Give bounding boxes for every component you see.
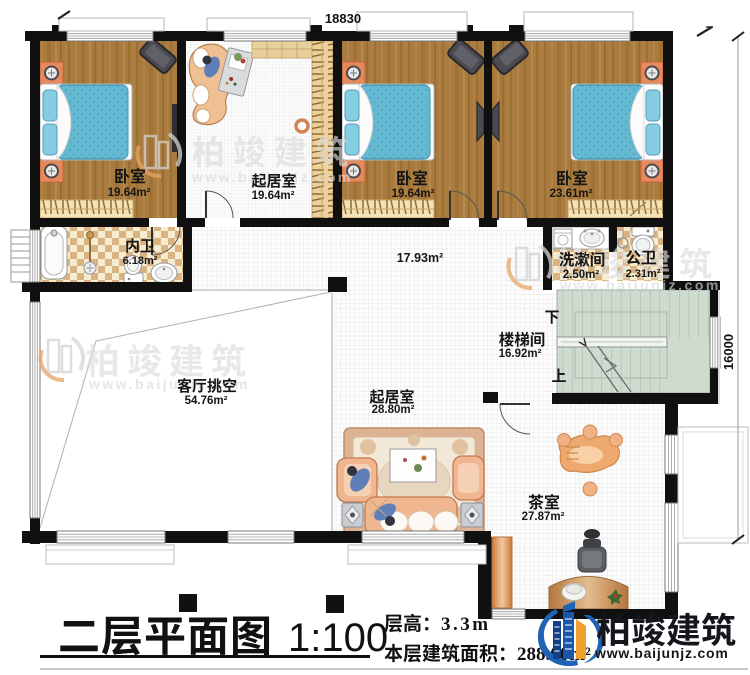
svg-text:2.50m²: 2.50m² [563,266,600,282]
svg-text:28.80m²: 28.80m² [372,401,415,417]
svg-text:54.76m²: 54.76m² [185,392,228,408]
svg-text:1:100: 1:100 [288,605,388,663]
svg-text:18830: 18830 [325,8,361,27]
svg-text:6.18m²: 6.18m² [123,252,158,268]
svg-text:19.64m²: 19.64m² [108,184,151,200]
svg-text:二层平面图: 二层平面图 [58,603,273,664]
svg-text:层高：3.3m: 层高：3.3m [384,609,491,636]
svg-text:2.31m²: 2.31m² [626,265,661,281]
svg-text:27.87m²: 27.87m² [522,508,565,524]
svg-text:19.64m²: 19.64m² [392,185,435,201]
svg-text:下: 下 [544,306,559,327]
svg-text:23.61m²: 23.61m² [550,185,593,201]
svg-text:www.baijunjz.com: www.baijunjz.com [594,643,729,663]
svg-text:19.64m²: 19.64m² [252,187,295,203]
svg-text:16000: 16000 [718,334,737,370]
svg-text:上: 上 [551,365,566,386]
svg-text:16.92m²: 16.92m² [499,345,542,361]
svg-text:17.93m²: 17.93m² [397,247,444,266]
